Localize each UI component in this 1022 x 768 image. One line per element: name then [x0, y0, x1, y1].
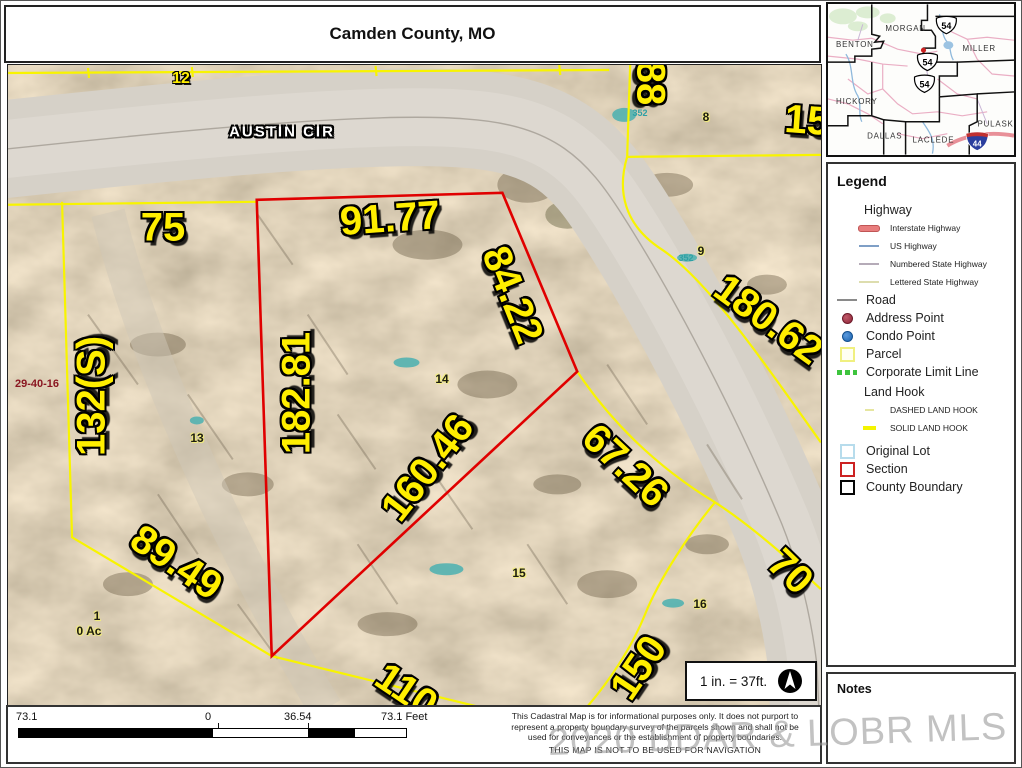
aerial-map-canvas — [8, 65, 821, 705]
svg-text:44: 44 — [973, 140, 982, 149]
legend-item-label: Original Lot — [866, 444, 930, 458]
location-marker-dot — [921, 48, 926, 53]
disclaimer-line: This Cadastral Map is for informational … — [492, 711, 818, 722]
address-swatch-icon — [837, 313, 857, 324]
legend-item-label: DASHED LAND HOOK — [890, 405, 978, 415]
lettered-swatch-icon — [856, 281, 882, 283]
county-label-benton: BENTON — [836, 40, 874, 49]
scale-ratio-text: 1 in. = 37ft. — [700, 674, 767, 689]
map-viewport[interactable]: AUSTIN CIR127591.7784.22132(S)182.81160.… — [7, 64, 822, 706]
county-label-miller: MILLER — [962, 44, 995, 53]
scale-bar — [18, 728, 407, 738]
legend-item: Highway — [864, 200, 1014, 219]
legend-item: Corporate Limit Line — [828, 363, 1014, 381]
notes-panel: Notes — [826, 672, 1016, 764]
scalebar-left-label: 73.1 — [16, 711, 37, 723]
svg-text:54: 54 — [941, 21, 951, 31]
legend-item: Land Hook — [864, 382, 1014, 401]
section-swatch-icon — [837, 462, 857, 477]
legend-item-label: County Boundary — [866, 480, 963, 494]
legend-item-label: Interstate Highway — [890, 223, 960, 233]
dashhook-swatch-icon — [856, 409, 882, 412]
scalebar-zero-label: 0 — [205, 711, 211, 723]
disclaimer: This Cadastral Map is for informational … — [492, 711, 818, 755]
county-label-dallas: DALLAS — [867, 132, 902, 141]
legend-item: Numbered State Highway — [828, 255, 1014, 273]
svg-text:54: 54 — [920, 79, 930, 89]
legend-item: Parcel — [828, 345, 1014, 363]
legend-item: Address Point — [828, 309, 1014, 327]
scalebar-mid-label: 36.54 — [284, 711, 312, 723]
map-title-bar: Camden County, MO — [4, 5, 821, 63]
disclaimer-line: represent a property boundary survey of … — [492, 722, 818, 733]
legend-item-label: Corporate Limit Line — [866, 365, 979, 379]
legend-item-label: Road — [866, 293, 896, 307]
legend-items: HighwayInterstate HighwayUS HighwayNumbe… — [828, 200, 1014, 496]
numbered-swatch-icon — [856, 263, 882, 265]
scale-ratio-box: 1 in. = 37ft. — [685, 661, 817, 701]
legend-item-label: Condo Point — [866, 329, 935, 343]
legend-item-label: Section — [866, 462, 908, 476]
solidhook-swatch-icon — [856, 426, 882, 430]
inset-locator-map[interactable]: MORGAN BENTON MILLER HICKORY DALLAS LACL… — [826, 2, 1016, 157]
legend-item-label: Numbered State Highway — [890, 259, 987, 269]
legend-panel: Legend HighwayInterstate HighwayUS Highw… — [826, 162, 1016, 667]
legend-item: DASHED LAND HOOK — [828, 401, 1014, 419]
legend-item-label: Parcel — [866, 347, 901, 361]
disclaimer-line: used for conveyances or the establishmen… — [492, 732, 818, 743]
legend-item: Lettered State Highway — [828, 273, 1014, 291]
legend-item-label: Address Point — [866, 311, 944, 325]
svg-text:54: 54 — [922, 58, 932, 68]
legend-item: Road — [828, 291, 1014, 309]
legend-item: Original Lot — [828, 442, 1014, 460]
county-label-pulaski: PULASKI — [978, 120, 1014, 129]
legend-item: SOLID LAND HOOK — [828, 419, 1014, 437]
scalebar-segment — [19, 729, 213, 737]
interstate-swatch-icon — [856, 225, 882, 232]
parcel-swatch-icon — [837, 347, 857, 362]
scale-strip: 73.1 0 36.54 73.1 Feet This Cadastral Ma… — [6, 705, 822, 764]
inset-lake — [943, 41, 953, 49]
scalebar-segment — [355, 729, 406, 737]
page-title: Camden County, MO — [330, 24, 496, 44]
condo-swatch-icon — [837, 331, 857, 342]
county-label-laclede: LACLEDE — [913, 136, 955, 145]
legend-item: County Boundary — [828, 478, 1014, 496]
legend-item-label: Lettered State Highway — [890, 277, 978, 287]
legend-item: Section — [828, 460, 1014, 478]
origlot-swatch-icon — [837, 444, 857, 459]
corporate-swatch-icon — [837, 370, 857, 375]
scalebar-right-label: 73.1 Feet — [381, 711, 427, 723]
inset-map-canvas: MORGAN BENTON MILLER HICKORY DALLAS LACL… — [828, 4, 1014, 155]
county-label-morgan: MORGAN — [885, 24, 926, 33]
scalebar-segment — [308, 729, 355, 737]
road-swatch-icon — [837, 299, 857, 301]
notes-title: Notes — [837, 682, 1014, 696]
legend-item-label: SOLID LAND HOOK — [890, 423, 968, 433]
us-swatch-icon — [856, 245, 882, 247]
legend-item-label: US Highway — [890, 241, 937, 251]
scalebar-segment — [213, 729, 308, 737]
legend-item: Interstate Highway — [828, 219, 1014, 237]
cadastral-map-page: Camden County, MO — [0, 0, 1022, 768]
legend-item: US Highway — [828, 237, 1014, 255]
north-arrow-icon — [777, 668, 803, 694]
legend-title: Legend — [837, 173, 1014, 189]
disclaimer-navigation-warning: THIS MAP IS NOT TO BE USED FOR NAVIGATIO… — [492, 745, 818, 756]
legend-item: Condo Point — [828, 327, 1014, 345]
county-label-hickory: HICKORY — [836, 97, 878, 106]
county-swatch-icon — [837, 480, 857, 495]
